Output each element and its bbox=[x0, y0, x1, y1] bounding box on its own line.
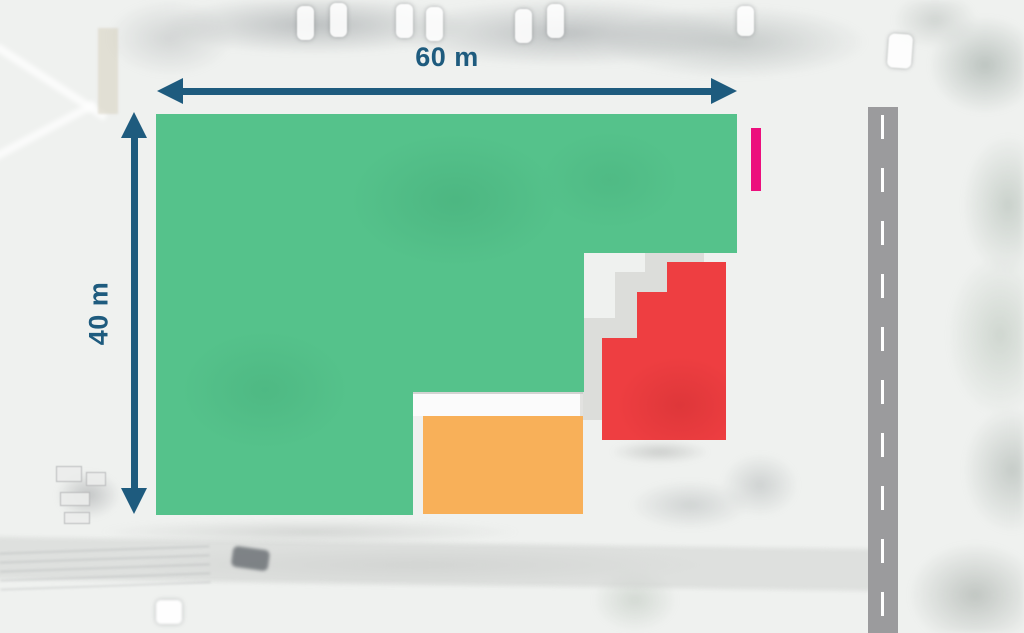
aerial-parked-car bbox=[297, 6, 314, 40]
aerial-parked-car bbox=[547, 4, 564, 38]
arrow-right-head bbox=[711, 78, 737, 104]
road bbox=[868, 107, 898, 633]
aerial-car bbox=[156, 600, 182, 624]
height-dimension-arrow bbox=[121, 112, 147, 514]
aerial-roof-strip bbox=[413, 392, 583, 416]
road-centerline-dashes bbox=[881, 115, 884, 633]
annex-building bbox=[423, 416, 583, 514]
aerial-parked-car bbox=[515, 9, 532, 43]
arrow-bottom-head bbox=[121, 488, 147, 514]
arrow-shaft bbox=[179, 88, 715, 95]
aerial-parked-car bbox=[887, 33, 913, 69]
aerial-parked-car bbox=[426, 7, 443, 41]
arrow-shaft bbox=[131, 134, 138, 492]
aerial-parked-car bbox=[737, 6, 754, 36]
aerial-building bbox=[98, 28, 118, 114]
width-dimension-label: 60 m bbox=[157, 42, 737, 73]
entrance-marker bbox=[751, 128, 761, 191]
aerial-parked-car bbox=[396, 4, 413, 38]
site-plan-diagram: 60 m 40 m bbox=[0, 0, 1024, 633]
aerial-rail-tracks bbox=[0, 545, 211, 592]
height-dimension-label-wrap: 40 m bbox=[76, 112, 122, 514]
aerial-parked-car bbox=[330, 3, 347, 37]
height-dimension-label: 40 m bbox=[84, 281, 115, 345]
width-dimension-arrow bbox=[157, 78, 737, 104]
